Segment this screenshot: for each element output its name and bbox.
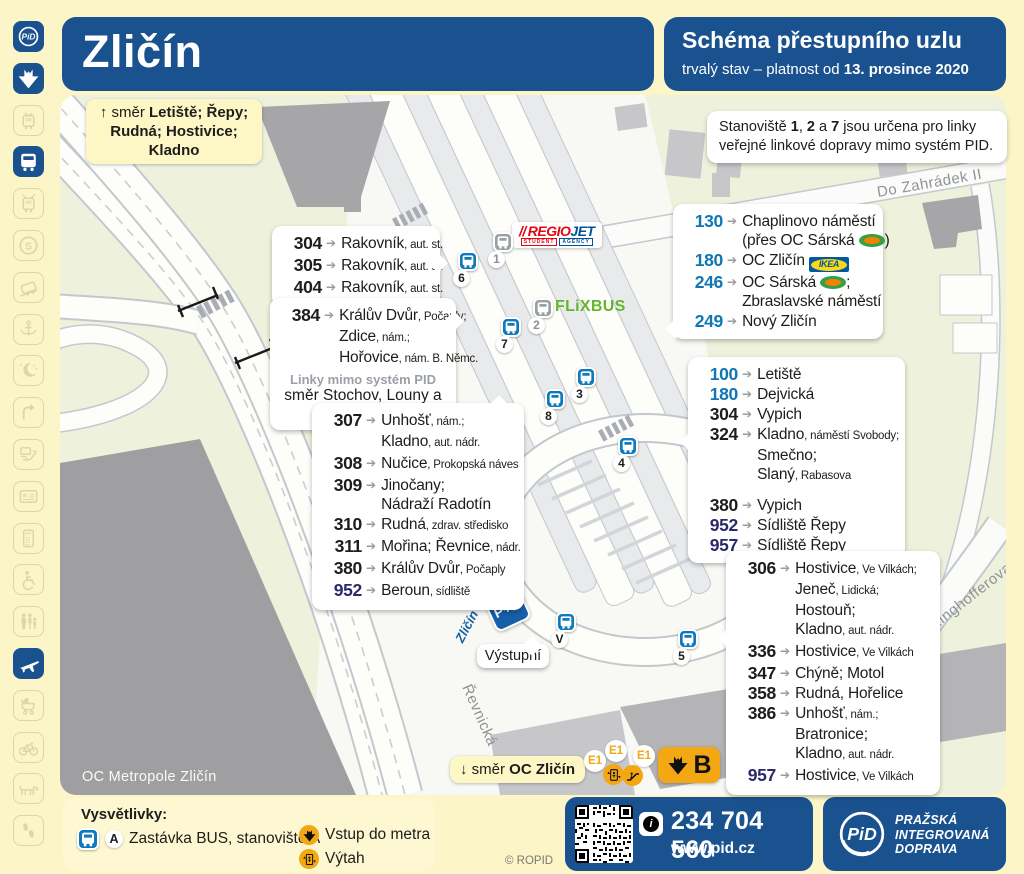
route-destinations: Letiště: [757, 365, 801, 384]
bus-stop-icon: [501, 317, 521, 337]
route-number: 306: [736, 559, 776, 641]
route-row: 957➔Hostivice, Ve Vilkách: [736, 766, 930, 787]
route-number: 957: [736, 766, 776, 787]
globus-logo: [859, 234, 885, 247]
route-panel-west-suburban-group: 307➔Unhošť, nám.;Kladno, aut. nádr.308➔N…: [312, 403, 524, 610]
route-row: 952➔Beroun, sídliště: [322, 581, 514, 602]
route-destinations: Vypich: [757, 496, 802, 515]
airport-icon[interactable]: [13, 648, 44, 679]
route-number: 952: [322, 581, 362, 602]
trolleybus-icon[interactable]: [13, 188, 44, 219]
arrow-icon: ➔: [780, 642, 790, 663]
route-destinations: Rakovník, aut. st.: [341, 278, 443, 299]
route-destinations: Vypich: [757, 405, 802, 424]
legend-title: Vysvětlivky:: [81, 806, 167, 823]
dog-icon[interactable]: [13, 773, 44, 804]
metro-icon: [666, 753, 690, 777]
arrow-icon: ➔: [742, 405, 752, 424]
stop-number-badge: 3: [571, 386, 588, 403]
route-row: 404➔Rakovník, aut. st.: [282, 278, 430, 299]
turnback-icon[interactable]: [13, 397, 44, 428]
route-row: 246➔OC Sárská ;Zbraslavské náměstí: [683, 273, 873, 311]
route-number: 336: [736, 642, 776, 663]
route-destinations: Rakovník, aut. st.: [341, 256, 443, 277]
route-row: 180➔OC Zličín IKEA: [683, 251, 873, 272]
route-destinations: OC Sárská ;Zbraslavské náměstí: [742, 273, 881, 311]
route-number: 324: [698, 425, 738, 486]
route-row: 324➔Kladno, náměstí Svobody;Smečno;Slaný…: [698, 425, 895, 486]
metro-entrance-icon: [299, 825, 319, 845]
route-row: 384➔Králův Dvůr, Počaply;Zdice, nám.;Hoř…: [280, 306, 446, 369]
arrow-icon: ➔: [780, 766, 790, 787]
arrow-icon: ➔: [780, 704, 790, 765]
svg-text:S: S: [25, 240, 32, 252]
arrow-icon: ➔: [326, 278, 336, 299]
train-icon[interactable]: S: [13, 230, 44, 261]
funicular-icon[interactable]: [13, 272, 44, 303]
route-destinations: Jinočany;Nádraží Radotín: [381, 476, 491, 514]
arrow-icon: ➔: [366, 559, 376, 580]
route-row: 380➔Vypich: [698, 496, 895, 515]
stop-number-badge: 1: [488, 251, 505, 268]
svg-text:PiD: PiD: [22, 32, 36, 42]
stop-number-badge: 4: [613, 455, 630, 472]
route-number: 358: [736, 684, 776, 703]
arrow-icon: ➔: [366, 454, 376, 475]
route-row: 304➔Rakovník, aut. st.: [282, 234, 430, 255]
pid-logo-icon: PiD: [837, 809, 887, 859]
route-number: 347: [736, 664, 776, 683]
route-number: 130: [683, 212, 723, 250]
platform-letter-badge: A: [105, 830, 123, 848]
validity-note: trvalý stav – platnost od 13. prosince 2…: [682, 61, 1006, 78]
exit-e1-badge: E1: [584, 750, 606, 772]
route-panel-rakovnik-group: 304➔Rakovník, aut. st.305➔Rakovník, aut.…: [272, 226, 440, 307]
qr-code: [575, 805, 633, 863]
route-number: 309: [322, 476, 362, 514]
route-row: 100➔Letiště: [698, 365, 895, 384]
route-number: 180: [683, 251, 723, 272]
night-service-icon[interactable]: [13, 355, 44, 386]
metro-line-letter: B: [693, 753, 711, 778]
route-row: 386➔Unhošť, nám.;Bratronice;Kladno, aut.…: [736, 704, 930, 765]
route-number: 384: [280, 306, 320, 369]
stop-number-badge: 5: [673, 648, 690, 665]
route-panel-city-west-group: 100➔Letiště180➔Dejvická304➔Vypich324➔Kla…: [688, 357, 905, 563]
route-destinations: Chaplinovo náměstí(přes OC Sárská ): [742, 212, 890, 250]
station-name-banner: Zličín: [62, 17, 654, 91]
map-canvas: Do Zahrádek II Ringhofferova Řevnická OC…: [60, 95, 1006, 795]
arrow-icon: ➔: [366, 476, 376, 514]
route-panel-city-lines-north: 130➔Chaplinovo náměstí(přes OC Sárská )1…: [673, 204, 883, 339]
arrow-icon: ➔: [366, 515, 376, 536]
arrow-icon: ➔: [742, 516, 752, 535]
elevator-icon: [299, 849, 319, 869]
website-link[interactable]: www.pid.cz: [671, 840, 755, 858]
family-icon[interactable]: [13, 606, 44, 637]
arrow-icon: ➔: [326, 256, 336, 277]
route-number: 311: [322, 537, 362, 558]
legend-bus-stop: A Zastávka BUS, stanoviště A: [77, 828, 320, 850]
route-destinations: Sídliště Řepy: [757, 516, 846, 535]
legend-elevator: Výtah: [299, 849, 365, 869]
svg-text:PiD: PiD: [847, 824, 877, 844]
wheelchair-icon[interactable]: [13, 564, 44, 595]
route-number: 304: [698, 405, 738, 424]
route-destinations: Nový Zličín: [742, 312, 816, 331]
route-number: 249: [683, 312, 723, 331]
route-number: 380: [698, 496, 738, 515]
route-number: 304: [282, 234, 322, 255]
route-row: 249➔Nový Zličín: [683, 312, 873, 331]
mobile-icon[interactable]: [13, 523, 44, 554]
legend-box: Vysvětlivky: A Zastávka BUS, stanoviště …: [63, 798, 435, 871]
exit-e1-badge: E1: [605, 740, 627, 762]
escalator-icon: [622, 765, 643, 786]
pid-brand-text: PRAŽSKÁ INTEGROVANÁ DOPRAVA: [895, 813, 990, 857]
route-destinations: Rakovník, aut. st.: [341, 234, 443, 255]
arrow-icon: ➔: [727, 273, 737, 311]
tram-icon[interactable]: [13, 105, 44, 136]
route-row: 180➔Dejvická: [698, 385, 895, 404]
route-destinations: Rudná, Hořelice: [795, 684, 903, 703]
route-row: 310➔Rudná, zdrav. středisko: [322, 515, 514, 536]
arrow-icon: ➔: [780, 684, 790, 703]
arrow-icon: ➔: [780, 559, 790, 641]
route-number: 308: [322, 454, 362, 475]
metro-icon[interactable]: [13, 63, 44, 94]
arrow-icon: ➔: [727, 312, 737, 331]
arrow-icon: ➔: [742, 385, 752, 404]
ikea-logo: IKEA: [809, 257, 849, 272]
route-row: 306➔Hostivice, Ve Vilkách;Jeneč, Lidická…: [736, 559, 930, 641]
stop-number-badge: 2: [528, 317, 545, 334]
arrow-icon: ➔: [366, 411, 376, 453]
route-destinations: Chýně; Motol: [795, 664, 884, 683]
arrow-icon: ➔: [366, 537, 376, 558]
route-row: 952➔Sídliště Řepy: [698, 516, 895, 535]
bus-stop-icon: [618, 436, 638, 456]
route-destinations: Hostivice, Ve Vilkách: [795, 766, 914, 787]
arrow-icon: ➔: [742, 425, 752, 486]
bus-stop-icon: [493, 232, 513, 252]
route-number: 310: [322, 515, 362, 536]
arrow-icon: ➔: [326, 234, 336, 255]
route-number: 952: [698, 516, 738, 535]
card-icon[interactable]: [13, 481, 44, 512]
route-destinations: Králův Dvůr, Počaply: [381, 559, 505, 580]
legend-metro-entrance: Vstup do metra: [299, 825, 430, 845]
ferry-icon[interactable]: [13, 314, 44, 345]
arrow-icon: ➔: [742, 365, 752, 384]
bus-icon[interactable]: [13, 146, 44, 177]
pid-brand-box: PiD PRAŽSKÁ INTEGROVANÁ DOPRAVA: [823, 797, 1006, 871]
route-number: 305: [282, 256, 322, 277]
metro-entrance-sign: B: [658, 747, 720, 783]
route-number: 180: [698, 385, 738, 404]
route-destinations: Hostivice, Ve Vilkách;Jeneč, Lidická;Hos…: [795, 559, 917, 641]
arrow-icon: ➔: [324, 306, 334, 369]
copyright: © ROPID: [505, 855, 553, 867]
pid-logo-icon[interactable]: PiD: [13, 21, 44, 52]
route-row: 380➔Králův Dvůr, Počaply: [322, 559, 514, 580]
route-row: 304➔Vypich: [698, 405, 895, 424]
walking-icon[interactable]: [13, 815, 44, 846]
route-number: 246: [683, 273, 723, 311]
arrow-icon: ➔: [727, 212, 737, 250]
route-destinations: Unhošť, nám.;Bratronice;Kladno, aut. nád…: [795, 704, 894, 765]
bus-stop-icon: [77, 828, 99, 850]
bus-stop-icon: [678, 629, 698, 649]
route-number: 386: [736, 704, 776, 765]
arrow-icon: ➔: [366, 581, 376, 602]
info-contact-box: 234 704 560 www.pid.cz: [565, 797, 813, 871]
route-number: 404: [282, 278, 322, 299]
route-row: 309➔Jinočany;Nádraží Radotín: [322, 476, 514, 514]
route-row: 130➔Chaplinovo náměstí(přes OC Sárská ): [683, 212, 873, 250]
route-row: 307➔Unhošť, nám.;Kladno, aut. nádr.: [322, 411, 514, 453]
route-row: 336➔Hostivice, Ve Vilkách: [736, 642, 930, 663]
route-destinations: Dejvická: [757, 385, 814, 404]
route-destinations: Nučice, Prokopská náves: [381, 454, 518, 475]
bus-stop-icon: [545, 389, 565, 409]
bike-icon[interactable]: [13, 732, 44, 763]
route-destinations: Rudná, zdrav. středisko: [381, 515, 508, 536]
route-row: 305➔Rakovník, aut. st.: [282, 256, 430, 277]
route-destinations: Kladno, náměstí Svobody;Smečno;Slaný, Ra…: [757, 425, 899, 486]
route-destinations: Hostivice, Ve Vilkách: [795, 642, 914, 663]
route-destinations: Unhošť, nám.;Kladno, aut. nádr.: [381, 411, 480, 453]
panel-footnote: Linky mimo systém PID: [280, 372, 446, 387]
scheme-title-banner: Schéma přestupního uzlu trvalý stav – pl…: [664, 17, 1006, 91]
globus-logo: [820, 276, 846, 289]
route-destinations: OC Zličín IKEA: [742, 251, 849, 272]
route-row: 358➔Rudná, Hořelice: [736, 684, 930, 703]
stop-number-badge: 8: [540, 408, 557, 425]
route-destinations: Beroun, sídliště: [381, 581, 470, 602]
stop-number-badge: 6: [453, 270, 470, 287]
transit-scheme-page: PiDS Zličín Schéma přestupního uzlu trva…: [0, 0, 1024, 874]
elevator-icon: [603, 764, 624, 785]
arrow-icon: ➔: [742, 496, 752, 515]
route-row: 308➔Nučice, Prokopská náves: [322, 454, 514, 475]
bus-stop-icon: [576, 367, 596, 387]
scheme-title: Schéma přestupního uzlu: [682, 27, 1006, 54]
pram-icon[interactable]: [13, 690, 44, 721]
route-number: 307: [322, 411, 362, 453]
route-panel-south-suburban-group: 306➔Hostivice, Ve Vilkách;Jeneč, Lidická…: [726, 551, 940, 795]
bus-stop-icon: [556, 612, 576, 632]
route-row: 347➔Chýně; Motol: [736, 664, 930, 683]
page-title: Zličín: [82, 26, 203, 78]
route-number: 380: [322, 559, 362, 580]
info-icon: [639, 812, 663, 836]
route-destinations: Mořina; Řevnice, nádr.: [381, 537, 521, 558]
arrow-icon: ➔: [727, 251, 737, 272]
bus-stop-icon: [533, 298, 553, 318]
route-number: 100: [698, 365, 738, 384]
stop-number-badge: V: [551, 631, 568, 648]
bus-stop-icon: [458, 251, 478, 271]
ticket-sale-icon[interactable]: [13, 439, 44, 470]
arrow-icon: ➔: [780, 664, 790, 683]
route-row: 311➔Mořina; Řevnice, nádr.: [322, 537, 514, 558]
stop-number-badge: 7: [496, 336, 513, 353]
exit-e1-badge: E1: [633, 745, 655, 767]
